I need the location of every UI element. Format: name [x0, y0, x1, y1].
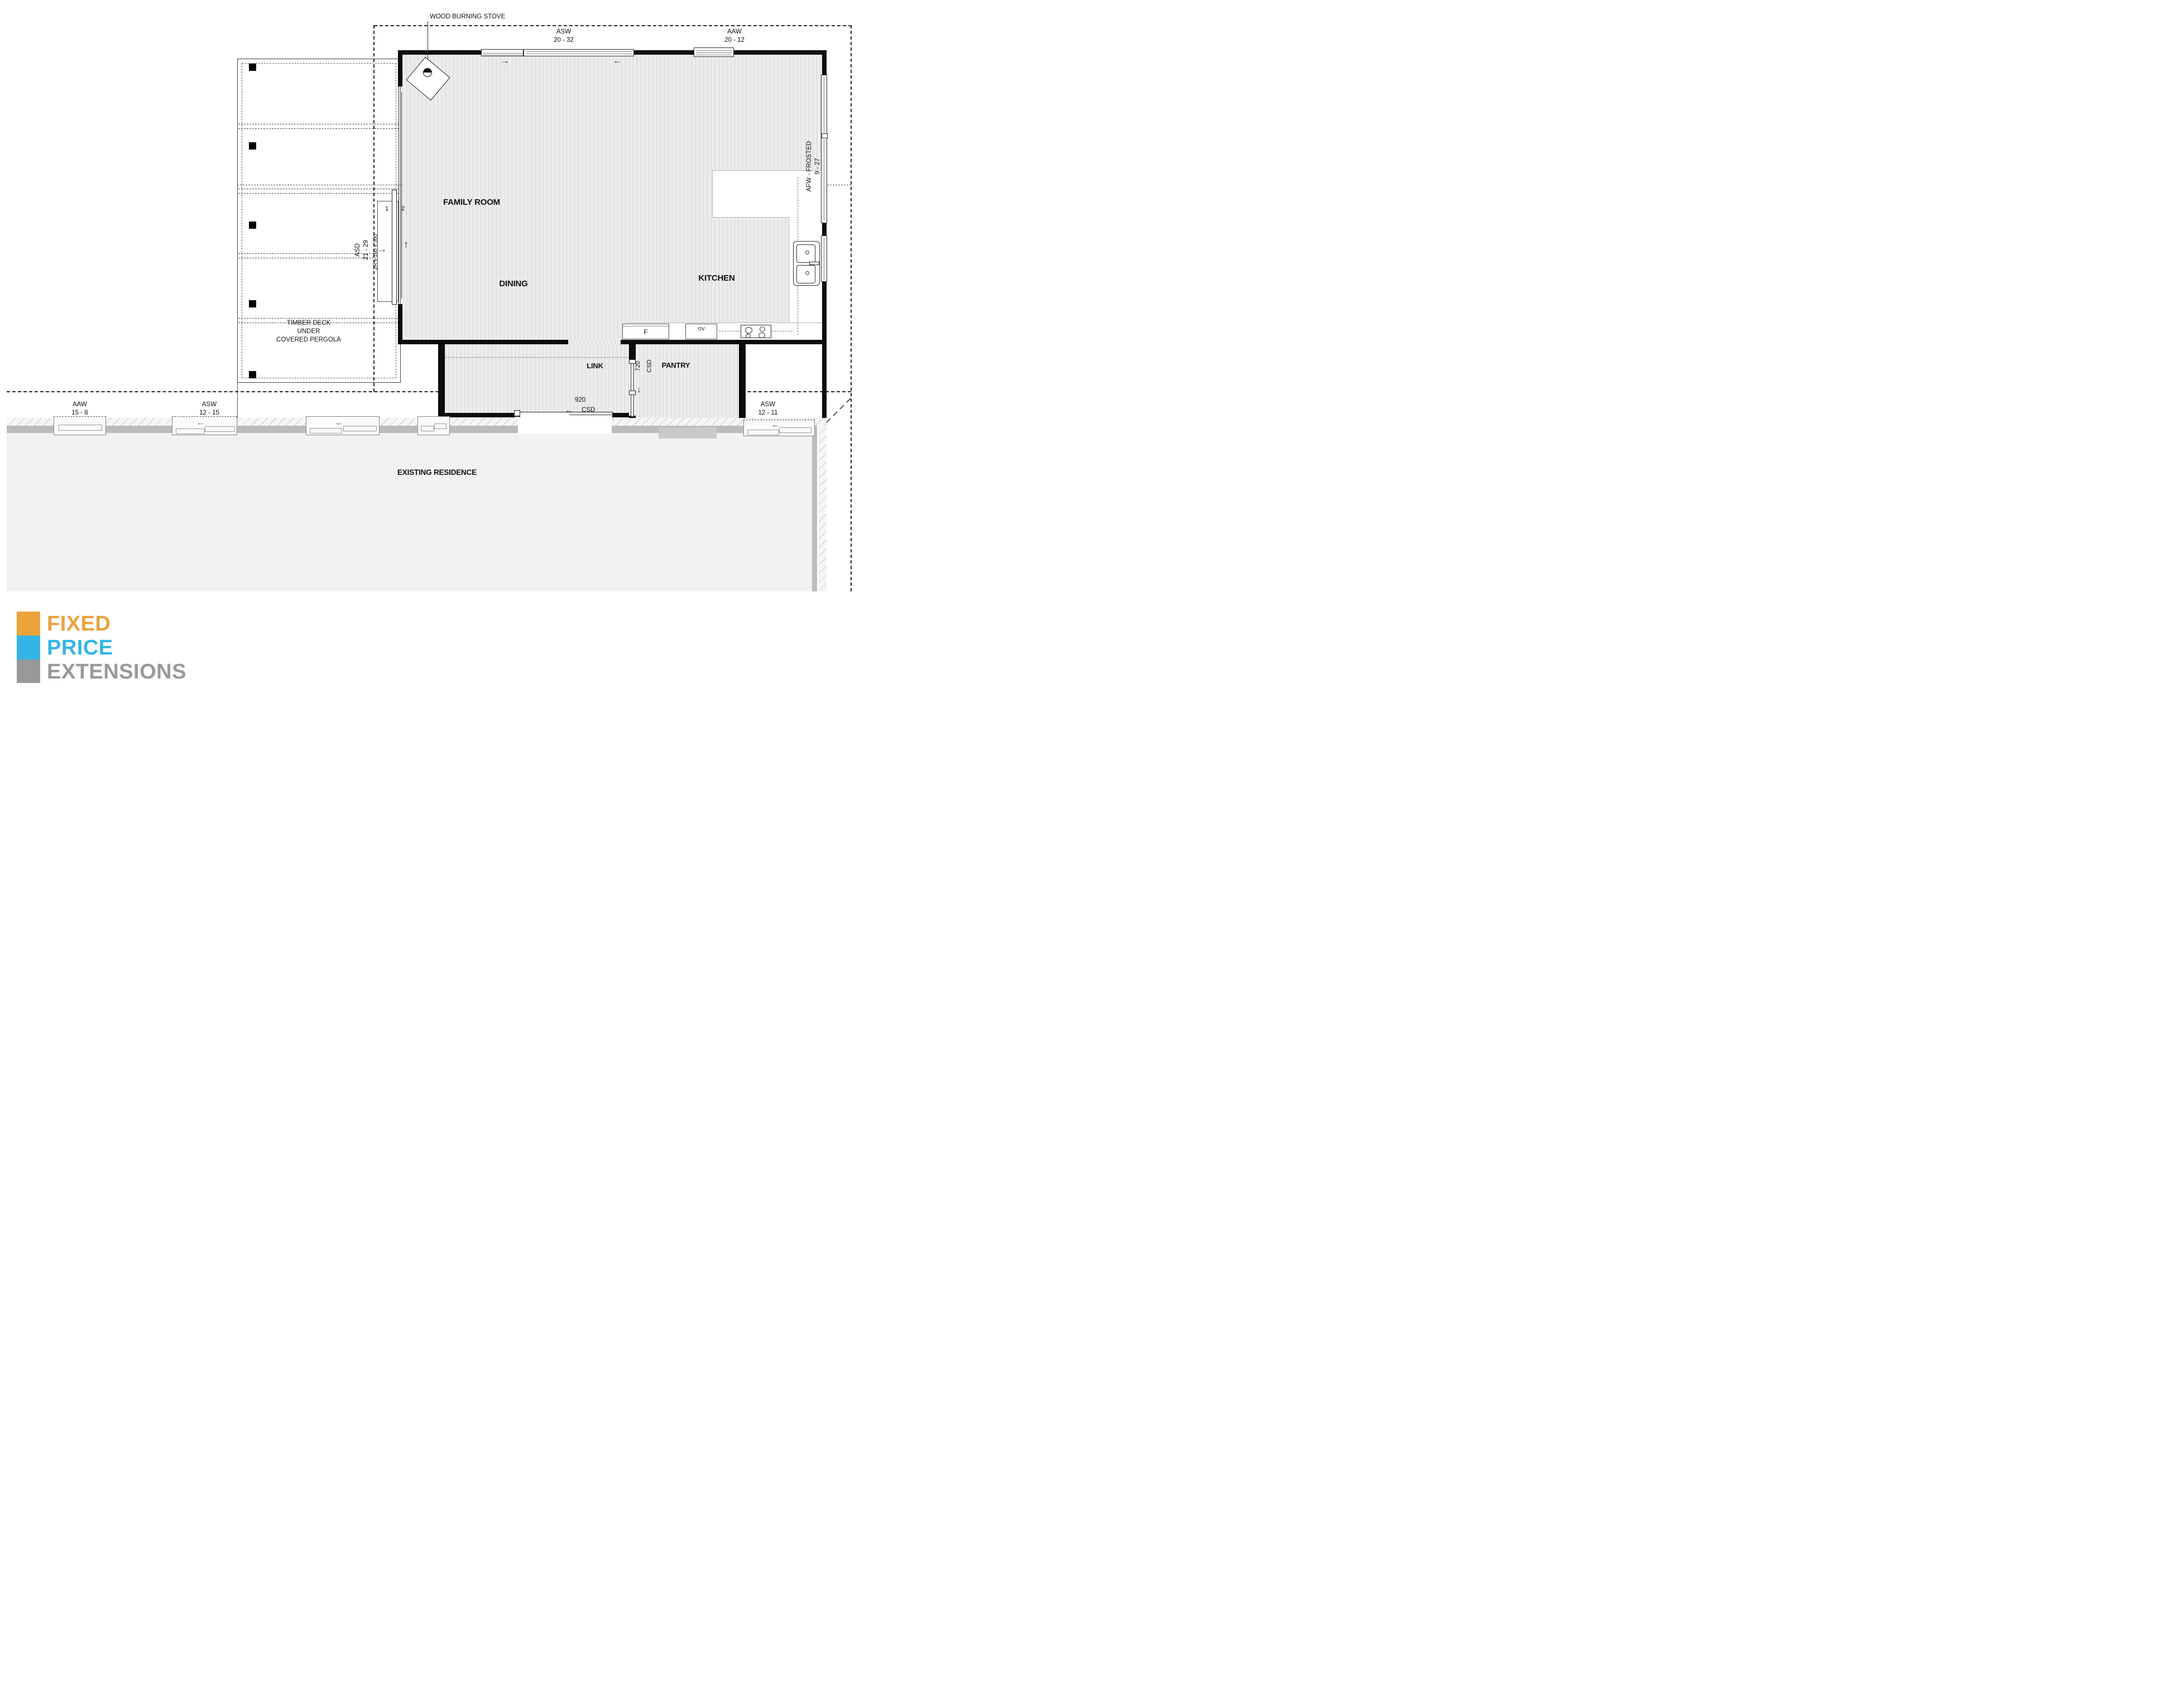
window-aaw-20-12	[694, 47, 734, 57]
room-label-link: LINK	[567, 362, 623, 370]
wall-left-upper	[398, 50, 402, 86]
pergola-post	[249, 300, 256, 307]
pergola-post	[249, 371, 256, 378]
step-1-label: 1	[385, 205, 388, 212]
window-sash-line	[824, 238, 824, 280]
window-sash-line	[696, 55, 732, 55]
asd-door-track	[398, 86, 399, 304]
deck-note-line3: COVERED PERGOLA	[253, 336, 364, 344]
pergola-post	[249, 142, 256, 150]
roof-outline-right	[851, 25, 852, 591]
slide-arrow-left-icon: ←	[771, 420, 780, 430]
existing-wall-opening	[518, 417, 612, 434]
fridge: F	[622, 324, 669, 339]
slide-arrow-left-icon: ←	[335, 418, 343, 427]
deck-note-line1: TIMBER DECK	[253, 319, 364, 328]
window-size: 9 - 27	[814, 124, 822, 208]
slide-arrow-right-icon: →	[500, 55, 510, 66]
link-floor	[445, 344, 629, 417]
window-sash	[59, 425, 102, 431]
csd-720-size: 720	[635, 361, 641, 371]
wall-right-upper	[822, 50, 827, 75]
room-label-dining: DINING	[472, 279, 555, 288]
window-mullion	[523, 50, 524, 56]
csd-920-arrow-icon: ←	[565, 406, 574, 416]
window-sash	[747, 430, 779, 435]
csd-720-jamb	[629, 391, 636, 395]
door-size: 21 - 29	[362, 208, 371, 292]
cooktop-burner	[760, 326, 765, 332]
window-sash	[310, 428, 342, 434]
room-label-kitchen: KITCHEN	[672, 273, 761, 283]
link-wall-left	[438, 344, 445, 413]
floor-plan: TIMBER DECK UNDER COVERED PERGOLA F	[0, 0, 872, 683]
window-label-asw-right: ASW 12 - 11	[726, 401, 810, 417]
window-sash-line	[824, 139, 824, 220]
deck-note-line2: UNDER	[253, 328, 364, 336]
logo-text-extensions: EXTENSIONS	[47, 661, 186, 683]
window-label-asw-top: ASW 20 - 32	[522, 28, 606, 45]
sink-tap-hole	[805, 251, 809, 254]
logo-square-orange	[17, 612, 40, 636]
existing-interior	[7, 433, 812, 591]
csd-920-code: CSD	[582, 407, 595, 413]
logo-text-fixed: FIXED	[47, 613, 111, 635]
stove-note: WOOD BURNING STOVE	[430, 13, 505, 20]
window-label-aaw-left: AAW 15 - 8	[38, 401, 122, 417]
link-wall-bottom	[438, 413, 518, 417]
csd-720-arrow-icon: ↓	[637, 385, 641, 394]
cooktop-burner	[758, 333, 765, 338]
window-sash-line	[526, 54, 632, 54]
window-sash-line	[824, 77, 824, 133]
existing-wall-gray-right	[812, 433, 817, 591]
step-2-label: 2	[401, 205, 405, 212]
window-label-afw: AFW - FROSTED 9 - 27	[805, 124, 822, 208]
link-wall-bottom-stub	[612, 413, 629, 417]
window-sash-line	[696, 50, 732, 51]
window-code: ASW	[522, 28, 606, 36]
door-code: ASD	[354, 208, 362, 292]
existing-wall-infill	[659, 427, 717, 439]
asd-door-track	[401, 92, 402, 299]
window-size: 12 - 11	[726, 409, 810, 417]
roof-outline-left	[373, 25, 374, 392]
step-up-arrow-icon: ↑	[404, 239, 409, 251]
window-code: ASW	[726, 401, 810, 409]
deck-note: TIMBER DECK UNDER COVERED PERGOLA	[253, 319, 364, 344]
csd-720-door	[631, 362, 634, 417]
csd-920-jamb	[514, 410, 520, 416]
window-sash	[779, 427, 812, 433]
window-afw-lower	[821, 235, 827, 282]
oven-label: OV	[686, 326, 717, 331]
sink-tap	[809, 262, 819, 265]
window-aaw-15-8	[54, 416, 106, 435]
window-sash-line	[483, 53, 523, 54]
slide-arrow-left-icon: ←	[196, 418, 205, 427]
wall-right-stub	[822, 344, 827, 420]
window-sash	[205, 426, 235, 432]
window-size: 15 - 8	[38, 409, 122, 417]
csd-920-size: 920	[575, 397, 585, 403]
oven: OV	[685, 324, 717, 339]
cooktop-burner	[745, 327, 752, 334]
wall-right-pier	[822, 223, 827, 235]
wall-bottom-east	[621, 340, 827, 344]
slide-arrow-left-icon: ←	[613, 55, 622, 66]
room-label-existing: EXISTING RESIDENCE	[353, 468, 521, 477]
cooktop-burner	[746, 334, 751, 338]
pantry-floor	[636, 344, 739, 426]
window-label-aaw-top: AAW 20 - 12	[693, 28, 776, 45]
logo-square-gray	[17, 660, 40, 683]
window-size: 12 - 15	[167, 409, 251, 417]
csd-920-leaf-line	[569, 415, 613, 415]
stove-flue-icon	[423, 68, 432, 77]
pergola-post	[249, 64, 256, 71]
window-sash	[434, 424, 446, 429]
wall-bottom-west	[398, 340, 568, 344]
logo-text-price: PRICE	[47, 637, 113, 659]
window-sash-line	[696, 52, 732, 53]
roof-outline-top	[374, 25, 852, 26]
wall-left-lower	[398, 304, 402, 344]
window-code: AAW	[38, 401, 122, 409]
link-opening-floor	[568, 340, 621, 344]
room-label-family: FAMILY ROOM	[416, 198, 527, 207]
sink-tap-hole	[805, 271, 809, 275]
window-code: AAW	[693, 28, 776, 36]
fridge-label: F	[623, 328, 669, 336]
asd-arrow-icon: →	[377, 244, 387, 255]
cooktop	[741, 325, 771, 338]
window-size: 20 - 12	[693, 36, 776, 45]
fridge-inner-line	[623, 326, 669, 326]
window-sash-line	[526, 51, 632, 52]
existing-wall-hatch-right	[819, 426, 827, 591]
asd-door-label: ASD 21 - 29	[354, 208, 371, 292]
window-size: 20 - 32	[522, 36, 606, 45]
window-divider	[822, 133, 828, 138]
sink	[793, 241, 820, 286]
window-code: ASW	[167, 401, 251, 409]
window-sash	[343, 426, 377, 431]
steps-note: 2R x 150 x 300	[373, 227, 379, 277]
window-sash	[176, 429, 205, 434]
asd-door-panel	[392, 190, 397, 305]
window-label-asw-mid: ASW 12 - 15	[167, 401, 251, 417]
window-sash	[421, 426, 434, 431]
window-code: AFW - FROSTED	[805, 124, 814, 208]
window-existing-small	[417, 416, 450, 435]
csd-720-code: CSD	[646, 359, 653, 372]
existing-wall-hatch	[7, 418, 827, 426]
pergola-post	[249, 222, 256, 229]
logo-square-blue	[17, 636, 40, 660]
